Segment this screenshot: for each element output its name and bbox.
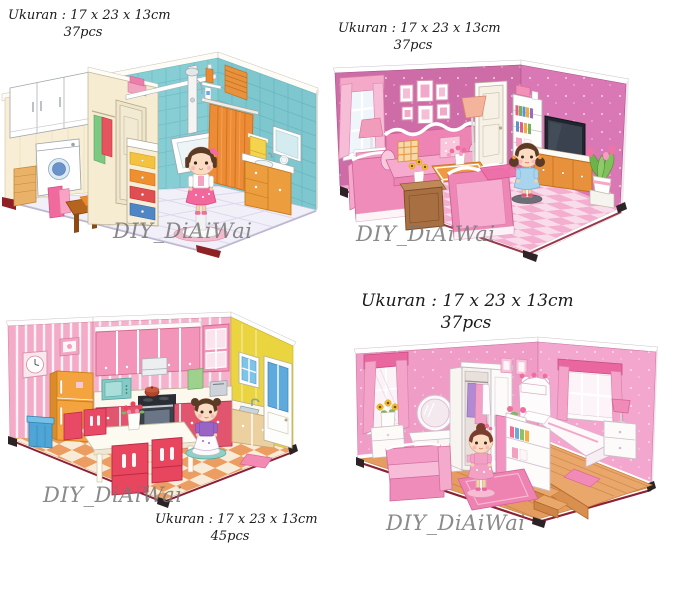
picture-frame: [60, 338, 79, 357]
hanging-clothes: [483, 385, 491, 415]
size-label-kitchen: Ukuran : 17 x 23 x 13cm 45pcs: [155, 511, 305, 545]
curtain: [557, 366, 569, 421]
pieces-text: 37pcs: [338, 37, 488, 54]
product-collage: Ukuran : 17 x 23 x 13cm 37pcs Ukuran : 1…: [0, 0, 700, 596]
toaster: [210, 381, 227, 397]
lamp-shade: [612, 399, 630, 413]
fridge-magnet: [76, 382, 83, 388]
drawer-cabinet: [127, 138, 158, 226]
stove: [138, 394, 176, 406]
towel: [102, 117, 112, 157]
cooking-pot: [145, 386, 159, 396]
watermark: DIY_DiAiWai: [113, 219, 252, 243]
window: [239, 352, 259, 388]
watermark: DIY_DiAiWai: [43, 483, 182, 507]
size-text: Ukuran : 17 x 23 x 13cm: [361, 290, 571, 312]
range-hood: [142, 358, 167, 377]
shampoo-bottle: [206, 68, 213, 83]
pieces-text: 37pcs: [8, 24, 158, 41]
bench: [386, 444, 452, 501]
microwave: [102, 378, 131, 400]
sink-vanity: [242, 153, 294, 215]
wall-clock: [23, 351, 47, 378]
size-label-bathroom: Ukuran : 17 x 23 x 13cm 37pcs: [8, 7, 158, 41]
plate: [280, 156, 289, 165]
cutting-board: [188, 369, 203, 390]
laundry-basket: [14, 166, 36, 206]
watermark: DIY_DiAiWai: [356, 222, 495, 246]
door: [475, 81, 507, 171]
size-text: Ukuran : 17 x 23 x 13cm: [338, 20, 488, 37]
size-label-livingroom: Ukuran : 17 x 23 x 13cm 37pcs: [338, 20, 488, 54]
cushion: [398, 140, 418, 162]
corner-cabinet: [203, 324, 229, 372]
pieces-text: 45pcs: [155, 528, 305, 545]
size-text: Ukuran : 17 x 23 x 13cm: [8, 7, 158, 24]
trash-bin: [27, 416, 54, 448]
watermark: DIY_DiAiWai: [386, 511, 525, 535]
door: [264, 356, 292, 448]
window: [557, 359, 623, 423]
